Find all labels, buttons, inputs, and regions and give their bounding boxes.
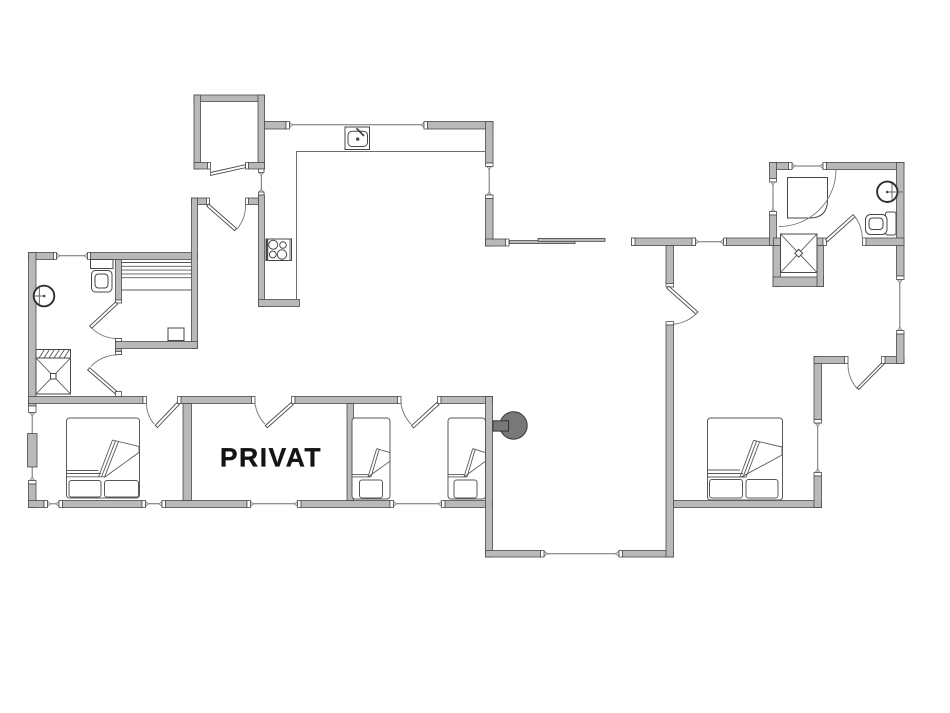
- svg-text:PRIVAT: PRIVAT: [220, 443, 322, 473]
